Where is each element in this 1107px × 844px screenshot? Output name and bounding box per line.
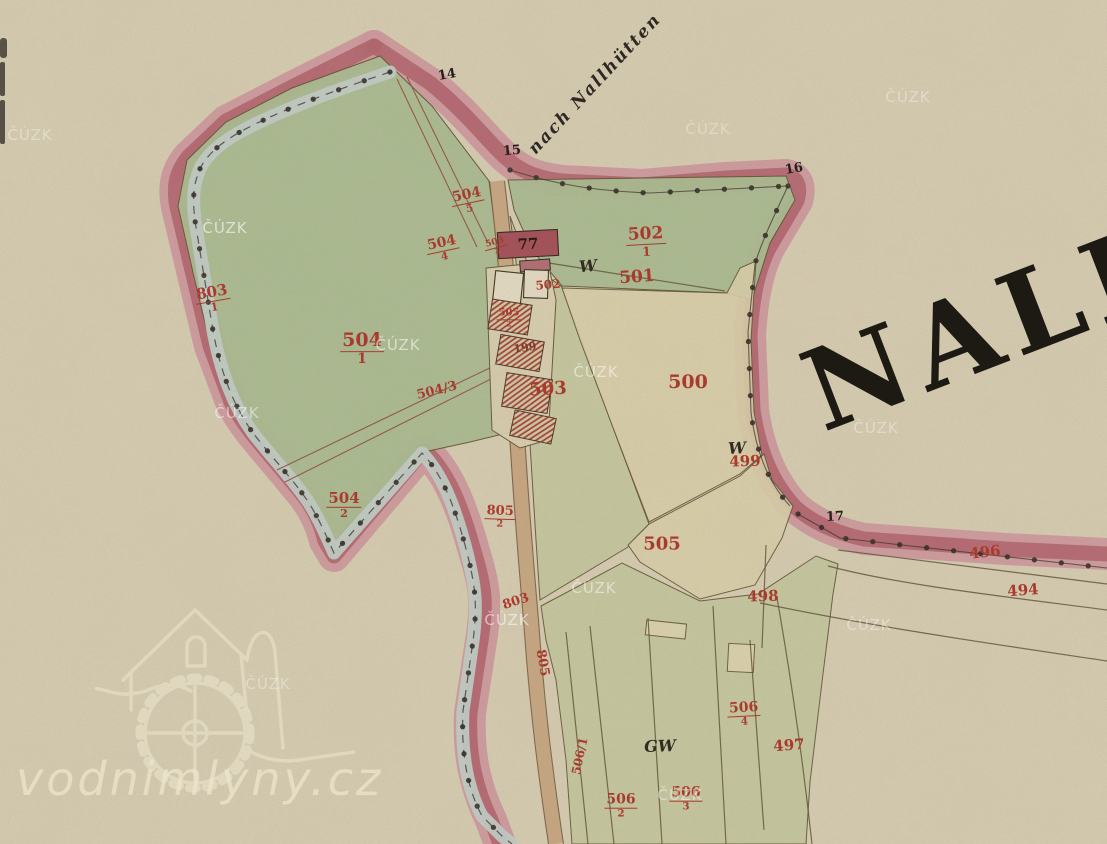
paper-grain-texture (0, 0, 1107, 844)
cadastral-map-viewport[interactable]: NALL nach Nallhütten 77 8031504150455044… (0, 0, 1107, 844)
cadastral-map-drawing (0, 0, 1107, 844)
